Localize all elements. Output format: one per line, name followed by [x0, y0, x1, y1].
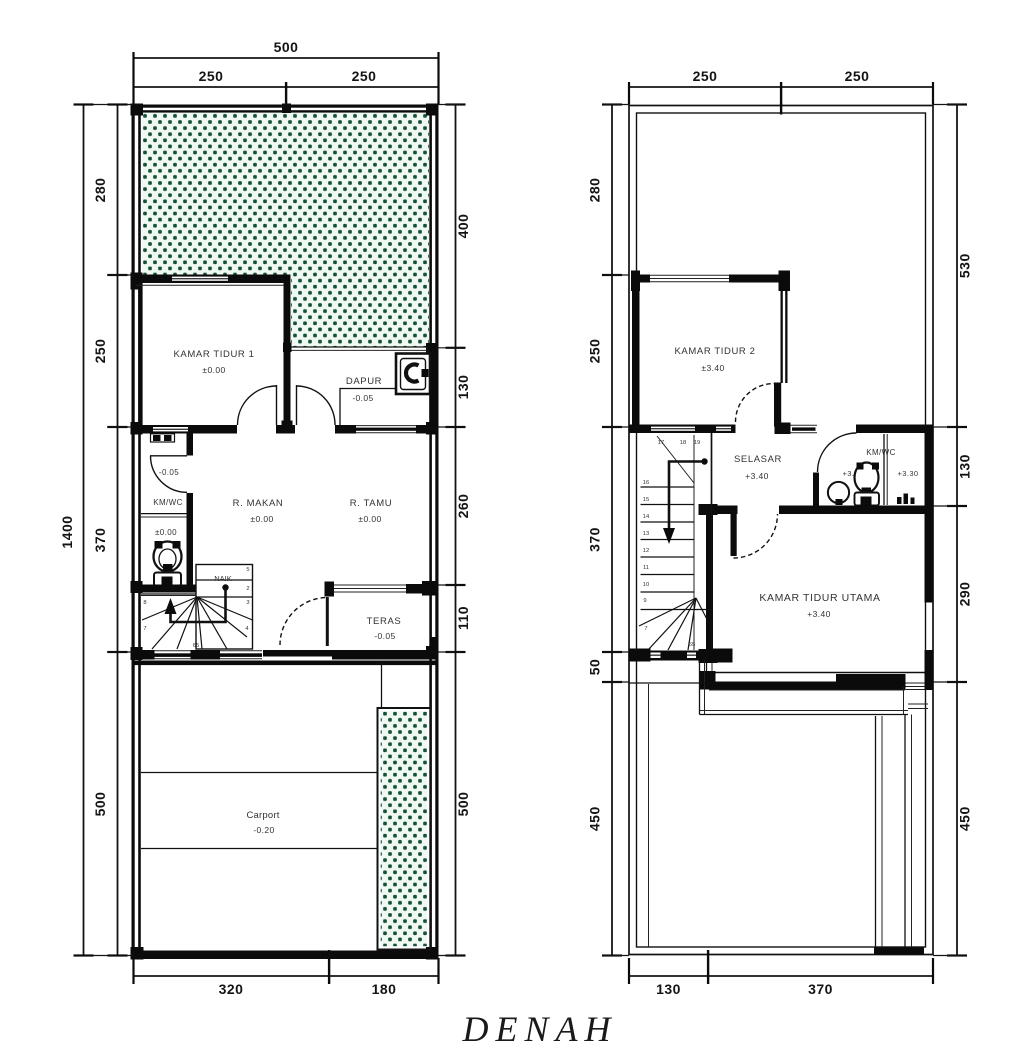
svg-text:370: 370 [92, 528, 108, 553]
svg-text:1400: 1400 [59, 515, 75, 548]
svg-text:±0.00: ±0.00 [155, 528, 177, 537]
svg-text:50: 50 [587, 659, 603, 676]
svg-text:320: 320 [219, 981, 244, 997]
svg-text:+3.40: +3.40 [745, 471, 769, 481]
svg-text:65: 65 [689, 642, 695, 648]
svg-text:±0.00: ±0.00 [202, 365, 225, 375]
svg-text:530: 530 [957, 253, 973, 278]
svg-text:R. MAKAN: R. MAKAN [233, 498, 284, 509]
svg-text:+3.30: +3.30 [898, 469, 919, 478]
svg-text:110: 110 [455, 606, 471, 630]
svg-text:KAMAR TIDUR 2: KAMAR TIDUR 2 [675, 346, 756, 357]
svg-text:KM/WC: KM/WC [153, 498, 183, 507]
svg-text:450: 450 [587, 806, 603, 831]
svg-text:14: 14 [643, 514, 650, 520]
svg-text:KAMAR TIDUR UTAMA: KAMAR TIDUR UTAMA [759, 592, 880, 604]
svg-text:17: 17 [658, 440, 664, 446]
svg-text:DENAH: DENAH [462, 1009, 618, 1049]
svg-text:15: 15 [643, 497, 649, 503]
svg-text:250: 250 [352, 68, 377, 84]
svg-text:18: 18 [680, 440, 686, 446]
svg-text:16: 16 [643, 480, 649, 486]
svg-text:Carport: Carport [246, 810, 279, 821]
svg-text:65: 65 [193, 643, 199, 649]
svg-text:4: 4 [245, 626, 249, 632]
svg-text:130: 130 [656, 981, 681, 997]
svg-text:-0.05: -0.05 [374, 631, 395, 641]
svg-text:10: 10 [643, 582, 649, 588]
svg-text:290: 290 [957, 582, 973, 607]
svg-text:500: 500 [455, 792, 471, 817]
svg-text:13: 13 [643, 531, 649, 537]
svg-text:260: 260 [455, 494, 471, 519]
svg-text:7: 7 [143, 626, 146, 632]
svg-text:9: 9 [643, 598, 646, 604]
svg-text:500: 500 [274, 39, 299, 55]
svg-text:19: 19 [694, 440, 700, 446]
svg-text:280: 280 [92, 178, 108, 203]
svg-text:DAPUR: DAPUR [346, 376, 382, 387]
svg-text:130: 130 [957, 454, 973, 479]
svg-text:370: 370 [587, 527, 603, 552]
svg-text:3: 3 [246, 600, 249, 606]
svg-text:250: 250 [199, 68, 224, 84]
svg-text:450: 450 [957, 806, 973, 831]
svg-text:2: 2 [246, 586, 249, 592]
svg-text:180: 180 [372, 981, 397, 997]
svg-text:±3.40: ±3.40 [701, 363, 724, 373]
svg-text:NAIK: NAIK [214, 574, 232, 583]
svg-text:500: 500 [92, 792, 108, 817]
svg-text:KM/WC: KM/WC [866, 448, 896, 457]
svg-text:12: 12 [643, 548, 649, 554]
svg-text:11: 11 [643, 565, 649, 571]
svg-text:250: 250 [587, 339, 603, 364]
svg-text:-0.05: -0.05 [352, 393, 373, 403]
svg-text:R. TAMU: R. TAMU [350, 498, 392, 509]
svg-text:±0.00: ±0.00 [358, 514, 381, 524]
svg-text:+3.40: +3.40 [807, 609, 831, 619]
svg-text:TERAS: TERAS [367, 616, 402, 627]
svg-text:250: 250 [92, 339, 108, 364]
svg-text:280: 280 [587, 178, 603, 203]
svg-text:-0.20: -0.20 [253, 825, 274, 835]
svg-text:KAMAR TIDUR 1: KAMAR TIDUR 1 [174, 349, 255, 360]
svg-text:8: 8 [143, 600, 146, 606]
svg-text:250: 250 [693, 68, 718, 84]
svg-text:370: 370 [808, 981, 833, 997]
svg-text:5: 5 [246, 567, 249, 573]
svg-text:±0.00: ±0.00 [250, 514, 273, 524]
svg-text:250: 250 [845, 68, 870, 84]
svg-text:400: 400 [455, 214, 471, 239]
svg-text:130: 130 [455, 375, 471, 400]
svg-text:SELASAR: SELASAR [734, 454, 782, 465]
svg-text:7: 7 [644, 626, 647, 632]
svg-text:-0.05: -0.05 [159, 468, 179, 477]
